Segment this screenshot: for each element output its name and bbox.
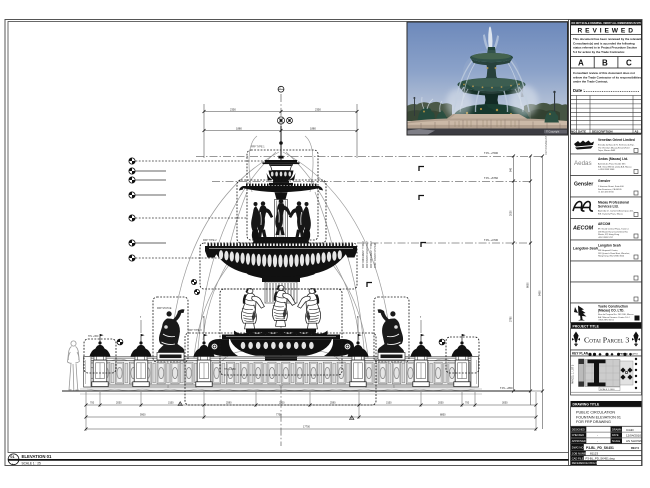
svg-text:17700: 17700 (303, 426, 311, 429)
svg-text:8F, Grand Central Plaza, Tower: 8F, Grand Central Plaza, Tower 2, (598, 228, 630, 231)
svg-text:© Copyright: © Copyright (546, 131, 560, 134)
svg-text:A: A (179, 402, 181, 406)
svg-text:Aedas: Aedas (574, 160, 592, 167)
svg-text:2700: 2700 (279, 402, 285, 405)
svg-text:PAINT FINISH SYSTEM: PAINT FINISH SYSTEM (374, 243, 377, 268)
svg-text:700: 700 (465, 402, 470, 405)
svg-text:CiAiD: CiAiD (626, 428, 635, 432)
svg-text:183 Queen's Road East, Wanchai: 183 Queen's Road East, Wanchai, (598, 252, 630, 255)
svg-text:DATE: DATE (578, 129, 586, 133)
svg-text:Aedas (Macau) Ltd.: Aedas (Macau) Ltd. (598, 157, 628, 161)
svg-text:t 852 2828 5757: t 852 2828 5757 (598, 236, 614, 239)
svg-text:6650: 6650 (527, 282, 530, 288)
svg-text:SCALE: SCALE (612, 440, 621, 443)
svg-text:PARCEL 1, LOT 3: PARCEL 1, LOT 3 (572, 364, 575, 384)
svg-text:3780: 3780 (510, 316, 513, 322)
svg-text:Services Ltd.: Services Ltd. (598, 205, 619, 209)
svg-text:FRP ORNAMENT TYPE 3: FRP ORNAMENT TYPE 3 (370, 240, 373, 268)
svg-text:2 Harrison Street, Suite 400: 2 Harrison Street, Suite 400 (598, 185, 624, 188)
svg-text:AECOM: AECOM (598, 222, 611, 226)
svg-text:1880: 1880 (310, 126, 316, 130)
svg-text:Rua de Pequim No. 202-246, Mac: Rua de Pequim No. 202-246, Macau (598, 314, 634, 316)
svg-text:CHECKED: CHECKED (572, 434, 584, 437)
svg-text:PARCEL 1, LOT 3: PARCEL 1, LOT 3 (620, 353, 639, 356)
svg-text:t +853 2833 3368: t +853 2833 3368 (598, 168, 615, 171)
svg-text:2050: 2050 (438, 402, 444, 405)
svg-text:Edf. Macau Finance Centre 10-J: Edf. Macau Finance Centre 10-J (598, 316, 630, 319)
svg-text:ELEVATION 01: ELEVATION 01 (22, 454, 53, 459)
svg-text:FRP FINISH GOLD PAINT: FRP FINISH GOLD PAINT (366, 240, 369, 268)
svg-text:JOB NUMBER: JOB NUMBER (572, 451, 590, 455)
svg-text:2030: 2030 (510, 210, 513, 216)
svg-text:2590: 2590 (226, 402, 232, 405)
svg-text:TPL +950: TPL +950 (88, 335, 99, 338)
svg-text:38F Hopewell Centre,: 38F Hopewell Centre, (598, 249, 619, 252)
svg-text:2050: 2050 (116, 402, 122, 405)
svg-text:DESCRIPTION: DESCRIPTION (592, 129, 613, 133)
svg-text:Estrada da Baia de N. Senhora: Estrada da Baia de N. Senhora da Esp. (598, 144, 635, 147)
svg-text:t 853 2870 5151: t 853 2870 5151 (598, 319, 615, 322)
svg-text:DRAWING TITLE: DRAWING TITLE (573, 403, 600, 407)
svg-text:TPL +1150: TPL +1150 (224, 368, 236, 371)
svg-text:FRP STATUE: FRP STATUE (157, 307, 172, 310)
svg-text:Edf. Dynasty Plaza, Macau: Edf. Dynasty Plaza, Macau (598, 212, 624, 215)
svg-text:1880: 1880 (236, 126, 242, 130)
svg-text:APPROVED: APPROVED (572, 440, 586, 443)
svg-text:8450: 8450 (539, 290, 542, 296)
svg-text:3050: 3050 (502, 402, 508, 405)
svg-text:T.P.L +6760: T.P.L +6760 (484, 176, 498, 180)
svg-text:Taipa, Macao SAR: Taipa, Macao SAR (598, 149, 616, 152)
svg-text:Shatin, NT, Hong Kong: Shatin, NT, Hong Kong (598, 233, 620, 236)
svg-text:REVIEWED: REVIEWED (578, 27, 636, 34)
svg-text:Langdon·Seah: Langdon·Seah (573, 247, 599, 251)
svg-text:Hong Kong t 852 2830 3500: Hong Kong t 852 2830 3500 (598, 255, 625, 258)
svg-text:FRP ORNAMENT TYPE 2: FRP ORNAMENT TYPE 2 (362, 240, 365, 268)
svg-text:FRP TYPE 3: FRP TYPE 3 (188, 329, 202, 332)
svg-text:AECOM: AECOM (572, 226, 594, 232)
svg-text:NO.: NO. (571, 129, 577, 133)
svg-text:Date :: Date : (573, 88, 585, 93)
svg-text:FOR FRP DRAWING: FOR FRP DRAWING (576, 420, 611, 424)
svg-text:DWG NO: DWG NO (572, 446, 585, 450)
svg-text:The Venetian Macao-Resort-Hote: The Venetian Macao-Resort-Hotel (598, 146, 630, 149)
svg-text:-: - (597, 433, 598, 437)
svg-text:REFERENCE DWG FILE NAME: REFERENCE DWG FILE NAME (572, 461, 610, 465)
svg-text:Edf. Great Will 14 andar A-B,: Edf. Great Will 14 andar A-B, Macau (598, 165, 632, 168)
svg-text:T.P.L +4730: T.P.L +4730 (484, 238, 498, 242)
svg-text:SCALE 1:1000: SCALE 1:1000 (600, 388, 615, 391)
svg-text:A3: A3 (635, 129, 639, 133)
svg-text:2590: 2590 (330, 402, 336, 405)
svg-text:P3-BL_PD_SK451: P3-BL_PD_SK451 (586, 446, 614, 450)
svg-text:KEY PLAN: KEY PLAN (572, 352, 589, 356)
svg-text:Langdon Seah: Langdon Seah (598, 244, 621, 248)
svg-text:FRP TYPE 2: FRP TYPE 2 (203, 239, 217, 242)
svg-text:5900: 5900 (140, 414, 146, 417)
svg-text:138 Shatin Rural Committee Rd,: 138 Shatin Rural Committee Rd, (598, 230, 628, 233)
svg-text:P3-BL_PD_SK451.dwg: P3-BL_PD_SK451.dwg (586, 456, 616, 460)
svg-text:PUBLIC CIRCULATION: PUBLIC CIRCULATION (576, 411, 615, 415)
svg-text:Gensler: Gensler (598, 179, 611, 183)
svg-text:t 1 415 433 3700: t 1 415 433 3700 (598, 191, 614, 194)
svg-text:Alameda Dr. Carlos D'Assumpcao: Alameda Dr. Carlos D'Assumpcao 411, (598, 210, 634, 213)
svg-text:840: 840 (510, 167, 513, 172)
svg-text:Venetian Orient Limited: Venetian Orient Limited (598, 138, 635, 142)
svg-text:81123: 81123 (590, 452, 598, 456)
svg-text:5.4 for action by the Trade Co: 5.4 for action by the Trade Contractor. (573, 50, 625, 54)
svg-text:T.P.L +7600: T.P.L +7600 (484, 151, 498, 155)
svg-text:San Francisco, CA 94105: San Francisco, CA 94105 (598, 188, 622, 191)
svg-text:DATE: DATE (612, 434, 619, 437)
svg-text:2350: 2350 (230, 107, 236, 111)
svg-text:Cotai Parcel 3: Cotai Parcel 3 (584, 336, 629, 345)
svg-text:FRP TYPE 1: FRP TYPE 1 (251, 146, 265, 149)
svg-text:SCALE 1 : 25: SCALE 1 : 25 (22, 462, 42, 466)
svg-text:700: 700 (90, 402, 95, 405)
svg-text:A: A (351, 416, 353, 420)
svg-text:DRAWN: DRAWN (612, 428, 622, 431)
svg-text:A: A (578, 59, 584, 68)
svg-text:12/04/2010: 12/04/2010 (626, 433, 641, 437)
svg-text:Avenida da Praia Grande 665: Avenida da Praia Grande 665 (598, 163, 626, 166)
svg-text:B: B (602, 59, 608, 68)
svg-text:01: 01 (10, 455, 14, 459)
svg-text:FOUNTAIN ELEVATION 01: FOUNTAIN ELEVATION 01 (576, 415, 621, 419)
svg-text:2350: 2350 (315, 107, 321, 111)
svg-text:PROJECT TITLE: PROJECT TITLE (573, 324, 600, 328)
svg-text:3150: 3150 (386, 402, 392, 405)
svg-text:3150: 3150 (168, 402, 174, 405)
svg-text:(Macau) CO. LTD.: (Macau) CO. LTD. (598, 309, 624, 313)
svg-text:DESIGNED: DESIGNED (572, 428, 585, 431)
svg-text:8850: 8850 (440, 414, 446, 417)
svg-text:REV 0: REV 0 (631, 446, 640, 450)
svg-text:-: - (597, 439, 598, 443)
svg-text:Gensler: Gensler (574, 182, 593, 188)
svg-text:C: C (626, 59, 632, 68)
svg-text:7750: 7750 (276, 414, 282, 417)
svg-text:T.P.L +950: T.P.L +950 (500, 386, 513, 390)
svg-text:AS SHOWN: AS SHOWN (626, 439, 642, 443)
svg-text:DO NOT SCALE DRAWING. VERIFY A: DO NOT SCALE DRAWING. VERIFY ALL DIMENSI… (572, 22, 643, 25)
svg-text:under the Trade Contract.: under the Trade Contract. (573, 80, 608, 84)
